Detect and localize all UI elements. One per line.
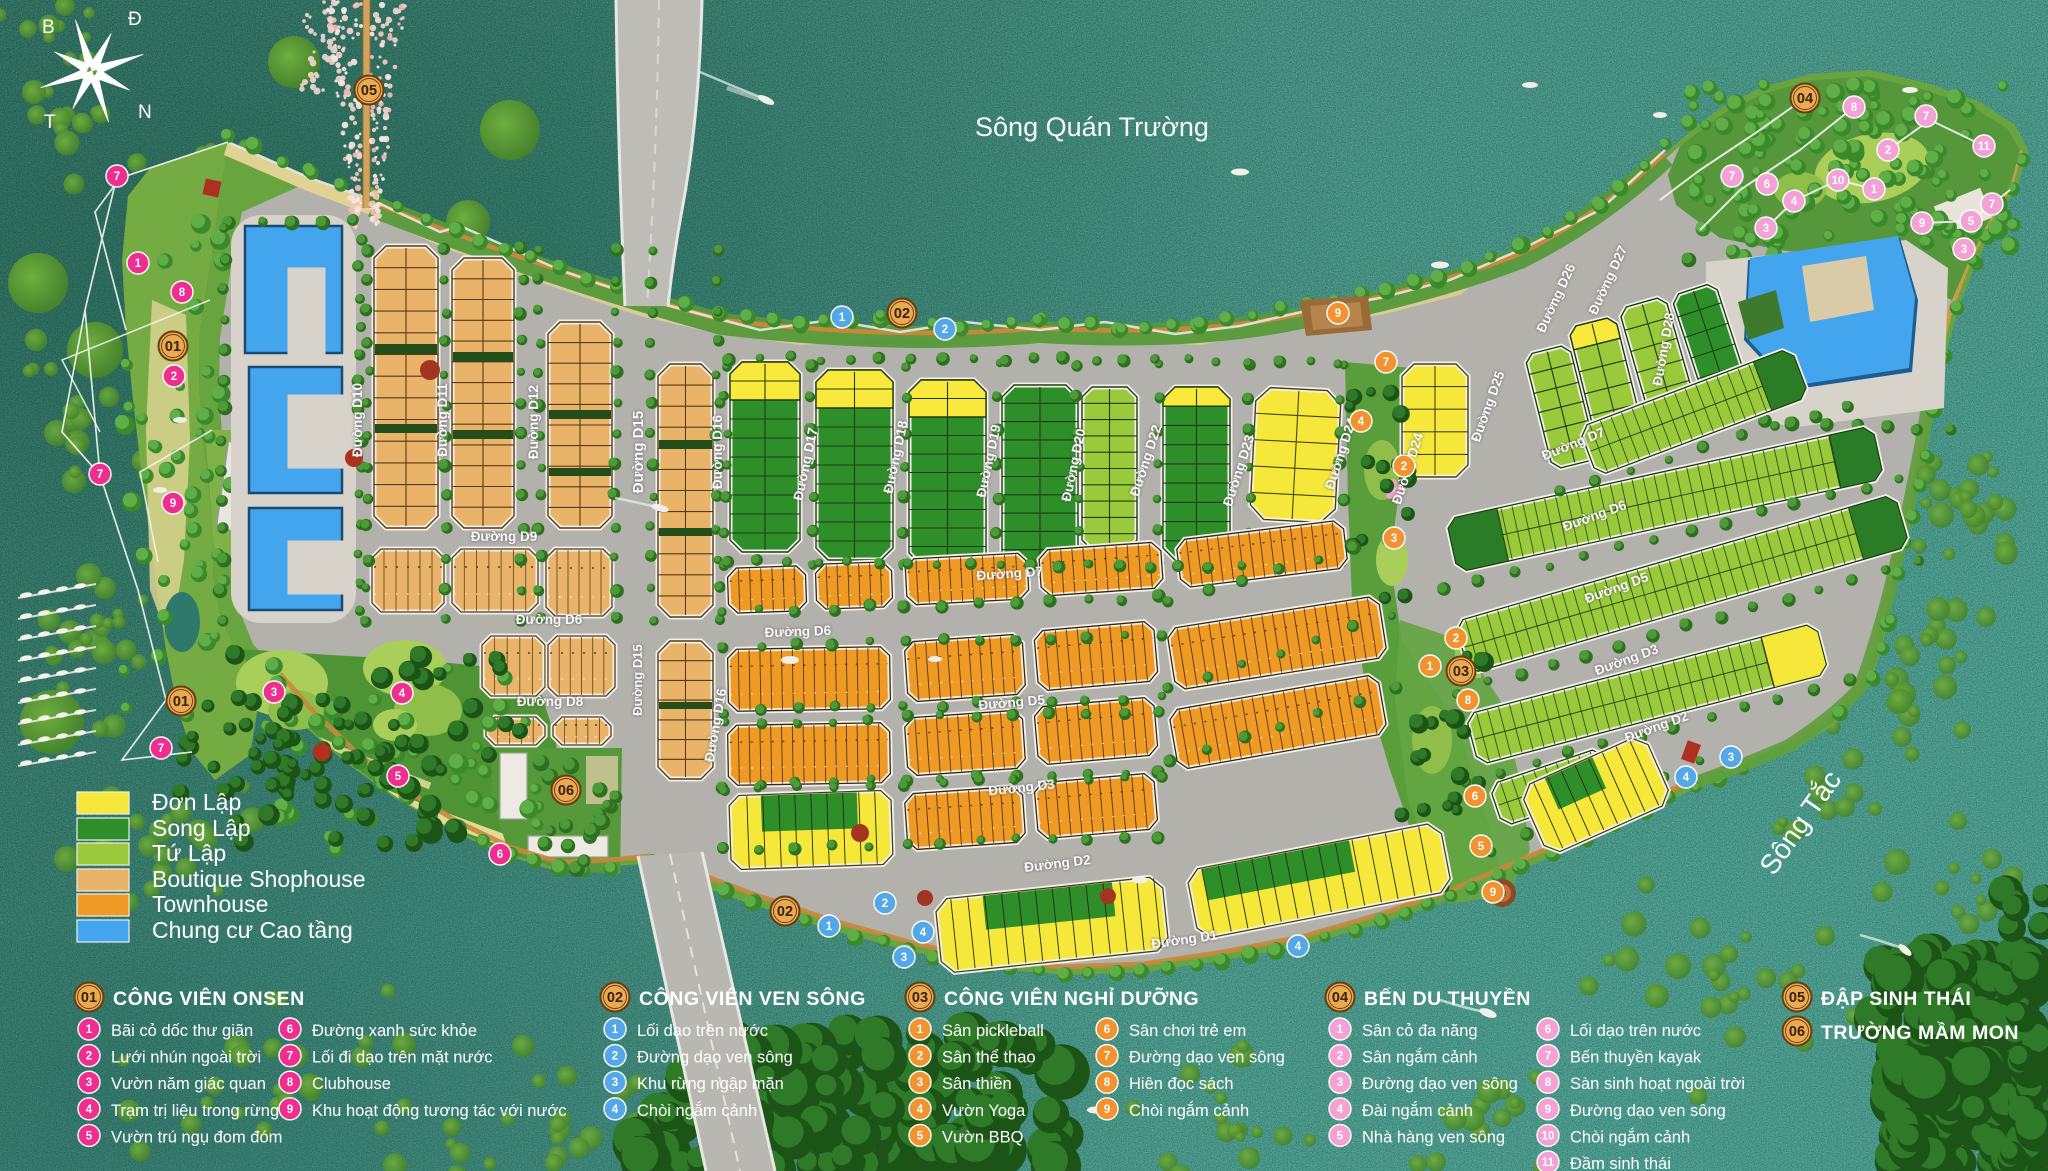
svg-text:Trạm trị liệu trong rừng: Trạm trị liệu trong rừng: [111, 1102, 279, 1120]
svg-text:7: 7: [1104, 1051, 1110, 1063]
svg-text:06: 06: [558, 783, 574, 799]
svg-text:Sân ngắm cảnh: Sân ngắm cảnh: [1362, 1048, 1478, 1067]
svg-text:Bãi cỏ dốc thư giãn: Bãi cỏ dốc thư giãn: [111, 1022, 253, 1040]
svg-text:Chòi ngắm cảnh: Chòi ngắm cảnh: [637, 1101, 757, 1120]
svg-text:Lối đi dạo trên mặt nước: Lối đi dạo trên mặt nước: [312, 1049, 493, 1067]
svg-text:1: 1: [612, 1024, 619, 1036]
svg-text:Đường D6: Đường D6: [764, 623, 832, 640]
svg-text:01: 01: [173, 694, 189, 710]
svg-text:Đường D12: Đường D12: [526, 385, 541, 459]
svg-text:Đường D8: Đường D8: [517, 694, 584, 709]
svg-text:7: 7: [1545, 1051, 1551, 1063]
svg-text:Đường dạo ven sông: Đường dạo ven sông: [637, 1049, 793, 1067]
svg-text:9: 9: [1545, 1104, 1551, 1116]
svg-text:7: 7: [1989, 199, 1995, 211]
svg-text:3: 3: [1337, 1077, 1343, 1089]
svg-text:Lối dạo trên nước: Lối dạo trên nước: [637, 1022, 768, 1040]
svg-text:2: 2: [1401, 461, 1407, 473]
svg-text:N: N: [138, 102, 152, 123]
svg-text:CÔNG VIÊN ONSEN: CÔNG VIÊN ONSEN: [113, 986, 305, 1010]
svg-text:Đường dạo ven sông: Đường dạo ven sông: [1362, 1075, 1518, 1093]
svg-text:Chòi ngắm cảnh: Chòi ngắm cảnh: [1129, 1101, 1249, 1120]
svg-text:CÔNG VIÊN VEN SÔNG: CÔNG VIÊN VEN SÔNG: [639, 986, 866, 1010]
svg-text:9: 9: [287, 1104, 293, 1116]
svg-text:Sân thiền: Sân thiền: [942, 1075, 1012, 1093]
svg-text:ĐẬP SINH THÁI: ĐẬP SINH THÁI: [1821, 986, 1971, 1010]
svg-text:02: 02: [894, 306, 910, 322]
svg-text:Đường D10: Đường D10: [350, 383, 365, 457]
svg-text:5: 5: [1337, 1130, 1344, 1142]
svg-text:7: 7: [1729, 171, 1735, 183]
svg-text:Đường D6: Đường D6: [516, 612, 583, 627]
svg-text:10: 10: [1542, 1130, 1555, 1142]
svg-text:11: 11: [1542, 1157, 1555, 1169]
svg-text:7: 7: [1923, 111, 1929, 123]
svg-text:Tứ Lập: Tứ Lập: [152, 840, 226, 866]
svg-text:03: 03: [912, 990, 928, 1006]
svg-text:9: 9: [1335, 308, 1341, 320]
svg-text:CÔNG VIÊN NGHỈ DƯỠNG: CÔNG VIÊN NGHỈ DƯỠNG: [944, 986, 1199, 1010]
svg-text:4: 4: [1358, 416, 1365, 428]
svg-text:Lưới nhún ngoài trời: Lưới nhún ngoài trời: [111, 1049, 261, 1067]
svg-text:3: 3: [1391, 533, 1397, 545]
svg-text:8: 8: [1465, 695, 1472, 707]
svg-text:2: 2: [612, 1051, 618, 1063]
svg-text:5: 5: [1478, 841, 1485, 853]
svg-text:7: 7: [97, 469, 103, 481]
svg-text:Sân pickleball: Sân pickleball: [942, 1022, 1044, 1040]
svg-text:8: 8: [1851, 102, 1858, 114]
svg-text:11: 11: [1978, 141, 1991, 153]
svg-text:Đường D15: Đường D15: [630, 411, 647, 493]
svg-text:Khu rừng ngập mặn: Khu rừng ngập mặn: [637, 1075, 784, 1093]
svg-text:3: 3: [1961, 244, 1967, 256]
svg-text:4: 4: [1337, 1104, 1344, 1116]
svg-text:10: 10: [1832, 175, 1845, 187]
svg-text:4: 4: [1791, 196, 1798, 208]
svg-text:8: 8: [179, 287, 186, 299]
svg-text:3: 3: [612, 1077, 618, 1089]
svg-text:Clubhouse: Clubhouse: [312, 1075, 391, 1093]
svg-text:1: 1: [826, 921, 833, 933]
svg-text:9: 9: [170, 498, 176, 510]
svg-text:Đường dạo ven sông: Đường dạo ven sông: [1570, 1102, 1726, 1120]
svg-text:9: 9: [1104, 1104, 1110, 1116]
svg-text:2: 2: [1885, 145, 1891, 157]
svg-text:Nhà hàng ven sông: Nhà hàng ven sông: [1362, 1128, 1505, 1146]
svg-text:6: 6: [1472, 791, 1478, 803]
svg-text:Sân chơi trẻ em: Sân chơi trẻ em: [1129, 1022, 1246, 1040]
svg-text:8: 8: [1545, 1077, 1552, 1089]
svg-text:5: 5: [917, 1130, 924, 1142]
svg-text:01: 01: [165, 339, 181, 355]
svg-text:1: 1: [917, 1024, 924, 1036]
svg-text:4: 4: [1683, 772, 1690, 784]
svg-text:6: 6: [1104, 1024, 1110, 1036]
svg-text:Vườn BBQ: Vườn BBQ: [942, 1128, 1024, 1146]
svg-text:5: 5: [86, 1130, 93, 1142]
svg-text:Vườn trú ngụ đom đóm: Vườn trú ngụ đom đóm: [111, 1128, 282, 1146]
svg-text:4: 4: [1295, 941, 1302, 953]
svg-text:5: 5: [1968, 216, 1975, 228]
svg-text:8: 8: [287, 1077, 294, 1089]
svg-text:4: 4: [917, 1104, 924, 1116]
svg-text:04: 04: [1332, 990, 1348, 1006]
svg-text:2: 2: [882, 898, 888, 910]
svg-text:Song Lập: Song Lập: [152, 815, 250, 841]
svg-text:6: 6: [287, 1024, 293, 1036]
svg-text:1: 1: [86, 1024, 93, 1036]
svg-text:Vườn năm giác quan: Vườn năm giác quan: [111, 1075, 266, 1093]
svg-text:2: 2: [1337, 1051, 1343, 1063]
svg-text:Đường D9: Đường D9: [471, 529, 538, 544]
svg-text:05: 05: [361, 83, 377, 99]
svg-text:8: 8: [1104, 1077, 1111, 1089]
svg-text:3: 3: [901, 952, 907, 964]
svg-text:Sông Quán Trường: Sông Quán Trường: [975, 112, 1209, 142]
svg-text:Đầm sinh thái: Đầm sinh thái: [1570, 1155, 1671, 1171]
svg-text:01: 01: [81, 990, 97, 1006]
svg-text:Sân cỏ đa năng: Sân cỏ đa năng: [1362, 1022, 1478, 1040]
svg-text:Đường D11: Đường D11: [435, 383, 450, 457]
svg-text:6: 6: [1764, 179, 1770, 191]
svg-text:05: 05: [1789, 990, 1805, 1006]
svg-text:1: 1: [1337, 1024, 1344, 1036]
svg-text:7: 7: [1383, 357, 1389, 369]
svg-text:Đường xanh sức khỏe: Đường xanh sức khỏe: [312, 1022, 477, 1040]
svg-text:Đường dạo ven sông: Đường dạo ven sông: [1129, 1049, 1285, 1067]
svg-text:9: 9: [1919, 218, 1925, 230]
svg-text:1: 1: [839, 312, 846, 324]
svg-text:06: 06: [1789, 1024, 1805, 1040]
svg-text:6: 6: [497, 849, 503, 861]
svg-text:Sân thể thao: Sân thể thao: [942, 1049, 1036, 1067]
svg-text:Đường D15: Đường D15: [630, 644, 645, 715]
svg-text:BẾN DU THUYỀN: BẾN DU THUYỀN: [1364, 987, 1531, 1010]
svg-text:Sàn sinh hoạt ngoài trời: Sàn sinh hoạt ngoài trời: [1570, 1075, 1745, 1093]
svg-text:2: 2: [1453, 633, 1459, 645]
svg-text:T: T: [44, 112, 56, 133]
svg-text:2: 2: [942, 324, 948, 336]
svg-text:1: 1: [1427, 661, 1434, 673]
svg-text:4: 4: [920, 927, 927, 939]
svg-text:Townhouse: Townhouse: [152, 891, 268, 917]
svg-text:3: 3: [1728, 752, 1734, 764]
svg-text:9: 9: [1490, 887, 1496, 899]
svg-text:B: B: [42, 17, 55, 38]
svg-text:7: 7: [287, 1051, 293, 1063]
svg-text:Đường D16: Đường D16: [710, 414, 725, 489]
svg-text:Boutique Shophouse: Boutique Shophouse: [152, 866, 366, 892]
svg-text:7: 7: [158, 743, 164, 755]
svg-text:Chòi ngắm cảnh: Chòi ngắm cảnh: [1570, 1127, 1690, 1146]
svg-text:3: 3: [1763, 223, 1769, 235]
svg-text:3: 3: [917, 1077, 923, 1089]
svg-text:Hiên đọc sách: Hiên đọc sách: [1129, 1075, 1234, 1093]
svg-text:7: 7: [114, 171, 120, 183]
svg-text:Đài ngắm cảnh: Đài ngắm cảnh: [1362, 1101, 1473, 1120]
svg-text:02: 02: [607, 990, 623, 1006]
svg-text:6: 6: [1545, 1024, 1551, 1036]
svg-text:03: 03: [1453, 664, 1469, 680]
svg-text:Đơn Lập: Đơn Lập: [152, 789, 241, 815]
svg-text:04: 04: [1797, 91, 1813, 107]
svg-text:1: 1: [1871, 184, 1878, 196]
svg-text:Vườn Yoga: Vườn Yoga: [942, 1102, 1026, 1120]
svg-text:TRƯỜNG MẦM MON: TRƯỜNG MẦM MON: [1821, 1020, 2019, 1044]
svg-text:3: 3: [271, 687, 277, 699]
svg-text:3: 3: [86, 1077, 92, 1089]
svg-text:2: 2: [171, 371, 177, 383]
svg-text:1: 1: [135, 258, 142, 270]
svg-text:5: 5: [395, 771, 402, 783]
svg-text:4: 4: [86, 1104, 93, 1116]
svg-text:Chung cư Cao tầng: Chung cư Cao tầng: [152, 917, 353, 943]
svg-text:02: 02: [777, 904, 793, 920]
svg-text:Lối dạo trên nước: Lối dạo trên nước: [1570, 1022, 1701, 1040]
svg-text:Khu hoạt động tương tác với nư: Khu hoạt động tương tác với nước: [312, 1102, 567, 1120]
svg-text:Bến thuyền kayak: Bến thuyền kayak: [1570, 1049, 1702, 1067]
svg-text:4: 4: [399, 688, 406, 700]
svg-text:Đ: Đ: [128, 9, 142, 30]
svg-text:2: 2: [917, 1051, 923, 1063]
svg-text:2: 2: [86, 1051, 92, 1063]
svg-text:4: 4: [612, 1104, 619, 1116]
